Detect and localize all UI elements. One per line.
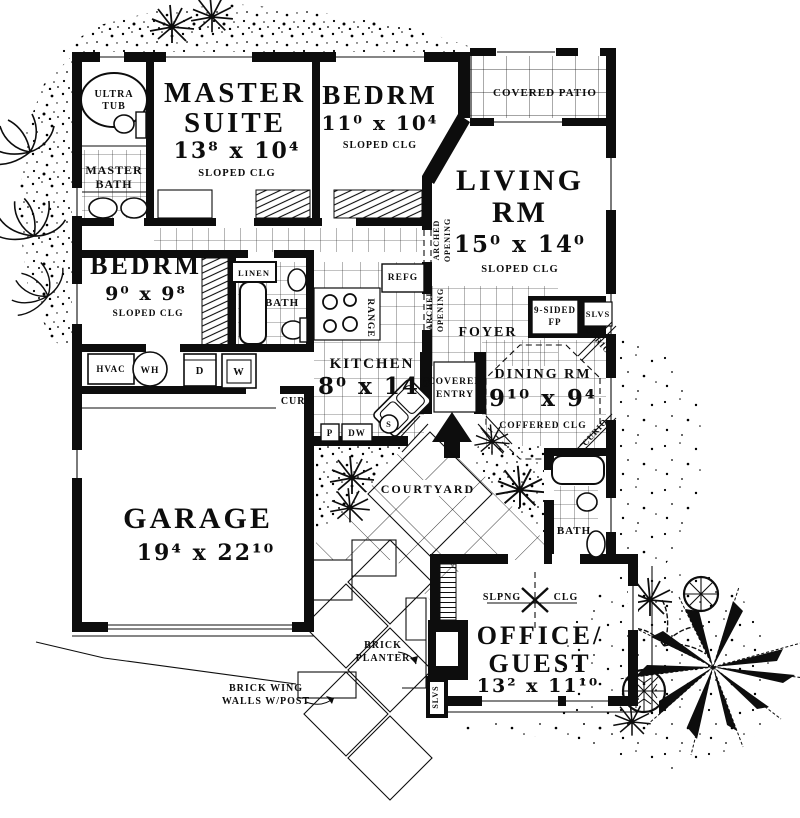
dishwasher-label: DW xyxy=(348,428,366,438)
bath-right-label: BATH xyxy=(557,525,591,537)
master-suite-title: MASTER xyxy=(164,77,306,109)
brick-wing-label: BRICK WING xyxy=(229,683,303,694)
master-suite-dims: 13⁸ x 10⁴ xyxy=(174,138,301,164)
vanity-sink xyxy=(89,198,117,218)
bathtub xyxy=(552,456,604,484)
dining-title: DINING RM xyxy=(495,367,592,382)
covered-entry-label: COVERED xyxy=(428,377,483,387)
sink-label: S xyxy=(386,419,392,429)
ultra-tub-label: ULTRA xyxy=(94,89,133,100)
master-bath-label: MASTER xyxy=(85,163,142,177)
kitchen-title: KITCHEN xyxy=(330,356,415,372)
brick-wing-wall xyxy=(298,672,356,698)
arched-opening-lower-label: ARCHED xyxy=(425,290,434,331)
floor-plan-drawing: ULTRA TUB MASTER BATH MASTER SUITE 13⁸ x… xyxy=(0,0,800,818)
master-suite-clg: SLOPED CLG xyxy=(198,168,275,179)
arched-opening-label: ARCHED xyxy=(432,220,441,261)
living-clg: SLOPED CLG xyxy=(481,264,558,275)
walkway xyxy=(298,540,432,800)
curb-label: CURB xyxy=(281,396,313,407)
office-title2: GUEST xyxy=(488,649,591,678)
office-title: OFFICE/ xyxy=(477,621,603,650)
refg-label: REFG xyxy=(388,273,418,283)
bath-sink xyxy=(288,269,306,291)
vanity-sink xyxy=(121,198,147,218)
kitchen-dims: 8⁰ x 14⁶ xyxy=(318,373,432,400)
wh-label: WH xyxy=(141,366,160,376)
ultra-tub-label2: TUB xyxy=(102,101,126,112)
office-dims: 13² x 11¹⁰ xyxy=(477,675,599,697)
bathtub xyxy=(240,282,266,344)
office-clg-right: CLG xyxy=(554,592,579,603)
master-bath-label2: BATH xyxy=(95,177,132,191)
arched-opening-label2: OPENING xyxy=(443,218,452,262)
courtyard-label: COURTYARD xyxy=(381,482,475,496)
bedroom-top-dims: 11⁰ x 10⁴ xyxy=(321,111,438,135)
floor-plan-page: ULTRA TUB MASTER BATH MASTER SUITE 13⁸ x… xyxy=(0,0,800,818)
hvac-label: HVAC xyxy=(96,364,125,374)
garage-title: GARAGE xyxy=(123,502,273,535)
bedroom-left-dims: 9⁰ x 9⁸ xyxy=(105,283,187,305)
bedroom-left-title: BEDRM xyxy=(90,251,202,280)
bedroom-top-clg: SLOPED CLG xyxy=(343,140,417,151)
fireplace-label2: FP xyxy=(549,317,562,327)
toilet xyxy=(114,115,134,133)
covered-entry-label2: ENTRY xyxy=(436,390,474,400)
brick-wing-label2: WALLS W/POST xyxy=(222,696,310,707)
dryer-label: D xyxy=(196,366,205,377)
covered-patio-label: COVERED PATIO xyxy=(493,87,597,99)
living-title: LIVING xyxy=(456,164,584,197)
arched-opening-lower-label2: OPENING xyxy=(436,288,445,332)
living-title2: RM xyxy=(492,196,548,229)
bath-sink xyxy=(577,493,597,511)
pantry-label: P xyxy=(327,428,334,438)
brick-planter-label2: PLANTER xyxy=(356,653,411,664)
bedroom-top-title: BEDRM xyxy=(322,80,438,110)
fireplace-label: 9-SIDED xyxy=(534,305,576,315)
shade-tree-icon xyxy=(684,577,718,611)
bedroom-left-clg: SLOPED CLG xyxy=(113,309,184,319)
dining-dims: 9¹⁰ x 9⁴ xyxy=(489,385,597,412)
washer-label: W xyxy=(233,367,245,378)
bath-mid-label: BATH xyxy=(265,297,299,309)
office-clg-left: SLPNG xyxy=(483,592,521,603)
living-dims: 15⁰ x 14⁰ xyxy=(454,231,586,258)
master-suite-title2: SUITE xyxy=(184,107,286,139)
range-label: RANGE xyxy=(365,298,375,337)
shelves-label: SLVS xyxy=(586,309,610,319)
dining-clg: COFFERED CLG xyxy=(499,421,586,431)
shelves-office-label: SLVS xyxy=(431,685,440,708)
garage-dims: 19⁴ x 22¹⁰ xyxy=(137,540,276,566)
brick-planter-label: BRICK xyxy=(364,640,402,651)
foyer-label: FOYER xyxy=(459,325,518,340)
linen-label: LINEN xyxy=(238,268,270,278)
covered-entry-box xyxy=(434,362,476,412)
